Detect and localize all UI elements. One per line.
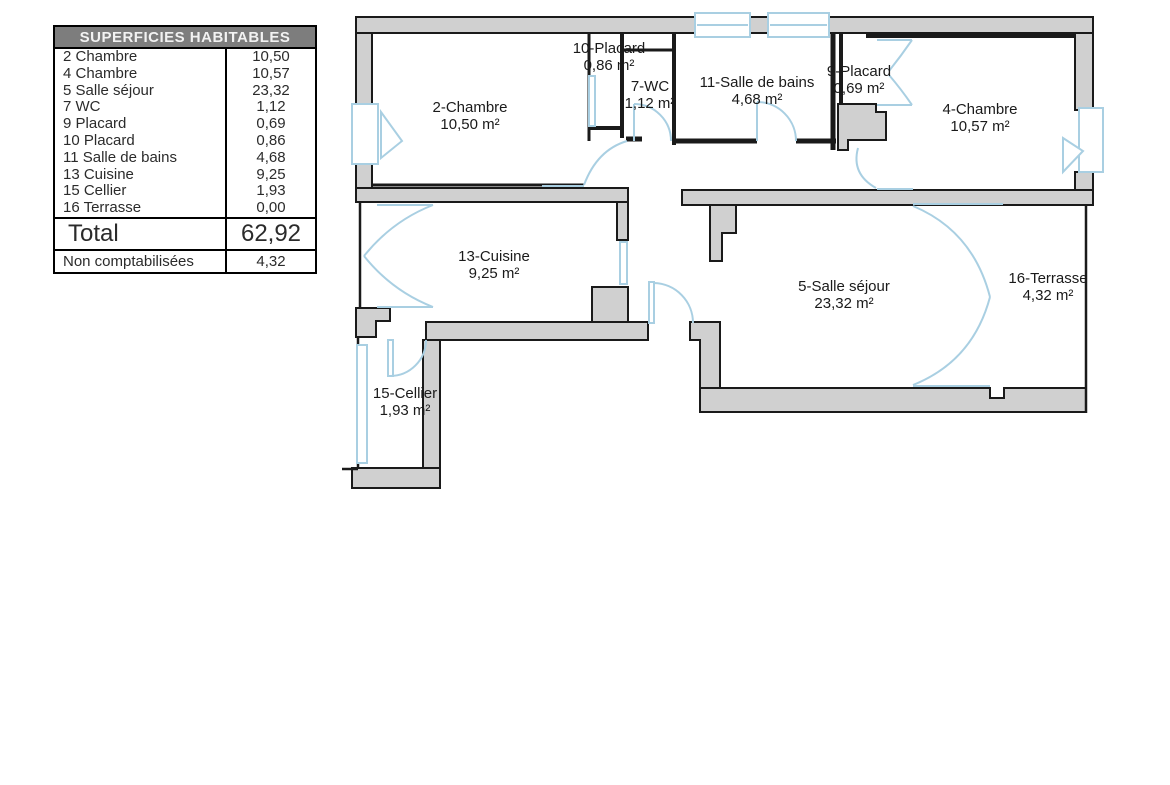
room-area-label-16: 4,32 m² bbox=[1023, 287, 1074, 304]
wall-segment bbox=[426, 322, 648, 340]
wall-segment bbox=[352, 468, 440, 488]
wall-segment bbox=[700, 388, 1086, 412]
wall-segment bbox=[617, 202, 628, 240]
door-leaf bbox=[388, 340, 393, 376]
wall-segment bbox=[356, 33, 372, 106]
wall-segment bbox=[356, 17, 697, 33]
room-label-2: 2-Chambre bbox=[432, 99, 507, 116]
door-arc bbox=[654, 283, 693, 323]
window bbox=[768, 13, 829, 37]
floorplan: 2-Chambre10,50 m²10-Placard0,86 m²7-WC1,… bbox=[0, 0, 1170, 785]
door-arc bbox=[889, 40, 912, 71]
room-label-15: 15-Cellier bbox=[373, 385, 437, 402]
wall-segment bbox=[748, 17, 770, 33]
room-area-label-2: 10,50 m² bbox=[440, 116, 499, 133]
window bbox=[695, 13, 750, 37]
door-arc bbox=[913, 206, 990, 297]
wall-segment bbox=[710, 205, 736, 261]
room-area-label-15: 1,93 m² bbox=[380, 402, 431, 419]
room-label-11: 11-Salle de bains bbox=[700, 74, 815, 91]
room-area-label-10: 0,86 m² bbox=[584, 57, 635, 74]
window bbox=[352, 104, 402, 164]
room-label-9: 9-Placard bbox=[827, 63, 891, 80]
wall-segment bbox=[356, 188, 628, 202]
room-label-7: 7-WC bbox=[631, 78, 669, 95]
room-area-label-11: 4,68 m² bbox=[732, 91, 783, 108]
wall-segment bbox=[356, 308, 390, 337]
door-arc bbox=[889, 75, 912, 105]
room-label-5: 5-Salle séjour bbox=[798, 278, 890, 295]
door-arc bbox=[856, 148, 876, 188]
door-arc bbox=[364, 205, 433, 256]
door-leaf bbox=[649, 282, 654, 323]
room-label-4: 4-Chambre bbox=[942, 101, 1017, 118]
room-area-label-13: 9,25 m² bbox=[469, 265, 520, 282]
room-area-label-4: 10,57 m² bbox=[950, 118, 1009, 135]
room-area-label-5: 23,32 m² bbox=[814, 295, 873, 312]
wall-segment bbox=[592, 287, 628, 323]
door-arc bbox=[584, 141, 627, 185]
wall-segment bbox=[682, 190, 1093, 205]
room-label-10: 10-Placard bbox=[573, 40, 646, 57]
door-arc bbox=[390, 340, 426, 376]
room-label-16: 16-Terrasse bbox=[1008, 270, 1087, 287]
room-area-label-9: 0,69 m² bbox=[834, 80, 885, 97]
window bbox=[357, 345, 367, 463]
room-label-13: 13-Cuisine bbox=[458, 248, 530, 265]
window-opening-arrow-icon bbox=[381, 112, 402, 158]
wall-segment bbox=[827, 17, 1093, 33]
room-area-label-7: 1,12 m² bbox=[625, 95, 676, 112]
door-arc bbox=[913, 297, 990, 385]
sliding-door bbox=[589, 76, 595, 126]
wall-segment bbox=[1075, 33, 1093, 110]
door-arc bbox=[364, 256, 433, 307]
window bbox=[1063, 108, 1103, 172]
sliding-door bbox=[620, 242, 627, 284]
wall-segment bbox=[838, 104, 886, 150]
